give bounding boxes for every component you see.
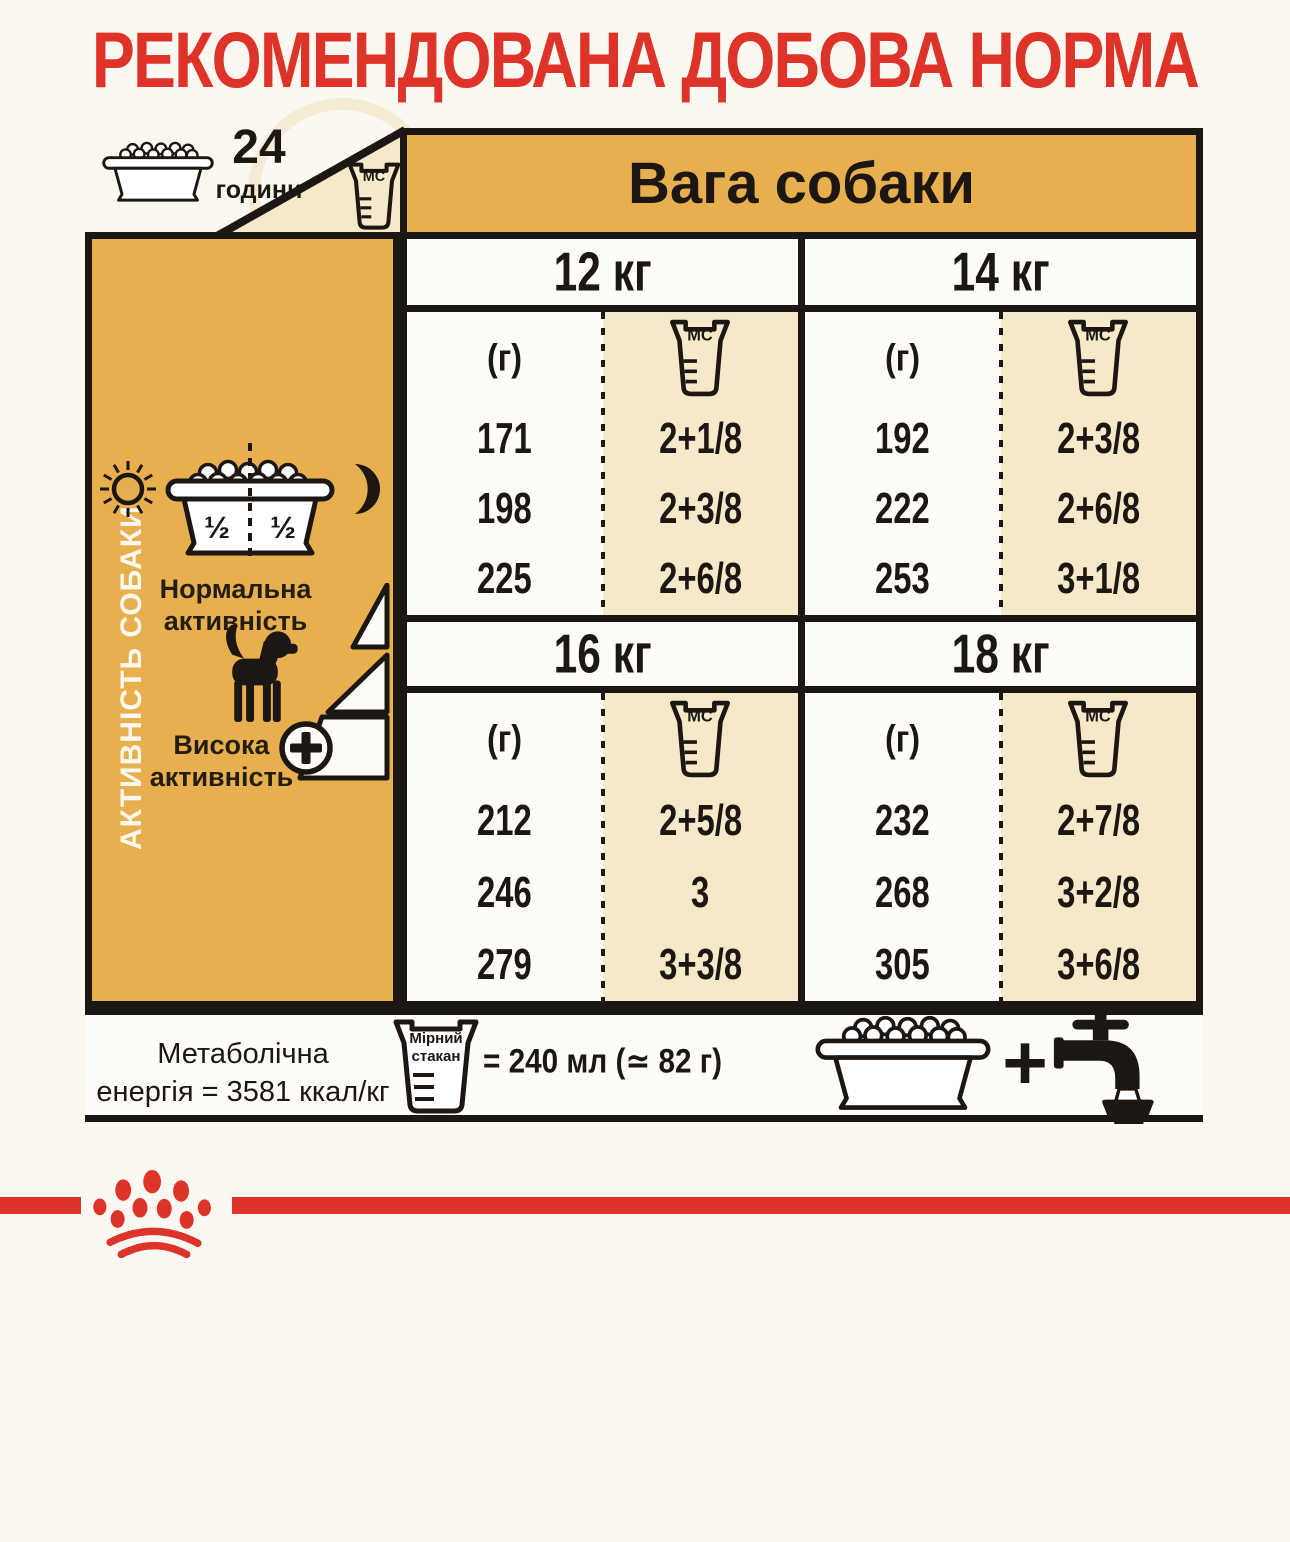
food-bowl-icon — [102, 141, 214, 205]
cup-label-line1: Мірний — [409, 1030, 462, 1047]
cups-column: MC 2+5/8 3 3+3/8 — [603, 693, 799, 1001]
weight-header: Вага собаки — [400, 128, 1203, 239]
measuring-cup-icon: MC — [1067, 318, 1129, 398]
page: РЕКОМЕНДОВАНА ДОБОВА НОРМА MC 24 години … — [0, 0, 1290, 1542]
cups-value: 3+6/8 — [1057, 941, 1140, 990]
cups-column: MC 2+3/8 2+6/8 3+1/8 — [1001, 312, 1197, 615]
grams-header: (г) — [487, 717, 522, 761]
half-bowl-icon: ½ ½ — [160, 439, 340, 569]
red-line-left — [0, 1197, 81, 1214]
weight-cell-18kg: 18 кг — [805, 622, 1196, 686]
cups-value: 2+6/8 — [1057, 485, 1140, 534]
grams-value: 268 — [875, 869, 930, 918]
half-right-label: ½ — [270, 510, 296, 545]
mc-label: MC — [1085, 327, 1111, 345]
table-footer: Метаболічна енергія = 3581 ккал/кг Мірни… — [85, 1008, 1203, 1122]
red-line-right — [232, 1197, 1290, 1214]
cups-value: 3+2/8 — [1057, 869, 1140, 918]
sun-icon — [96, 457, 160, 521]
plus-circle-icon — [276, 718, 336, 778]
dotted-divider — [601, 312, 605, 615]
cups-value: 2+3/8 — [659, 485, 742, 534]
mc-label: MC — [363, 169, 385, 185]
grams-value: 246 — [477, 869, 532, 918]
grams-value: 305 — [875, 941, 930, 990]
grams-value: 198 — [477, 485, 532, 534]
measuring-cup-icon: MC — [669, 699, 731, 779]
weight-label-16kg: 16 кг — [553, 622, 651, 686]
dotted-divider — [999, 312, 1003, 615]
cups-column: MC 2+7/8 3+2/8 3+6/8 — [1001, 693, 1197, 1001]
moon-icon — [346, 463, 380, 515]
cups-value: 3+3/8 — [659, 941, 742, 990]
dog-icon — [218, 623, 298, 727]
food-bowl-icon — [807, 1015, 999, 1115]
plus-icon: + — [993, 1017, 1057, 1108]
data-cell-14kg: (г) 192 222 253 MC 2+3/8 2+6/8 3+1/8 — [805, 312, 1196, 615]
metabolic-energy-line1: Метаболічна — [93, 1035, 393, 1073]
hours-unit: години — [204, 176, 314, 205]
cup-label-line2: стакан — [412, 1048, 461, 1065]
cups-value: 2+6/8 — [659, 556, 742, 605]
grams-value: 253 — [875, 556, 930, 605]
weight-cell-12kg: 12 кг — [407, 239, 798, 305]
data-cell-16kg: (г) 212 246 279 MC 2+5/8 3 3+3/8 — [407, 693, 798, 1001]
cups-value: 2+1/8 — [659, 415, 742, 464]
grams-column: (г) 171 198 225 — [407, 312, 603, 615]
metabolic-energy-line2: енергія = 3581 ккал/кг — [93, 1073, 393, 1111]
weight-header-label: Вага собаки — [628, 150, 975, 217]
grams-value: 232 — [875, 797, 930, 846]
weight-cell-16kg: 16 кг — [407, 622, 798, 686]
half-left-label: ½ — [204, 510, 230, 545]
grams-value: 212 — [477, 797, 532, 846]
hours-number: 24 — [216, 120, 302, 175]
mc-label: MC — [687, 708, 713, 726]
measuring-cup-icon: MC — [669, 318, 731, 398]
weight-label-18kg: 18 кг — [951, 622, 1049, 686]
grams-header: (г) — [487, 336, 522, 380]
grams-header: (г) — [885, 336, 920, 380]
activity-sidebar: АКТИВНІСТЬ СОБАКИ ½ ½ — [85, 232, 400, 1008]
feeding-table: 12 кг 14 кг (г) 171 198 225 MC 2+1 — [400, 232, 1203, 1008]
grams-value: 279 — [477, 941, 532, 990]
metabolic-energy-label: Метаболічна енергія = 3581 ккал/кг — [93, 1035, 393, 1111]
dotted-divider — [601, 693, 605, 1001]
page-title: РЕКОМЕНДОВАНА ДОБОВА НОРМА — [52, 15, 1239, 105]
grams-value: 225 — [477, 556, 532, 605]
cups-column: MC 2+1/8 2+3/8 2+6/8 — [603, 312, 799, 615]
mc-label: MC — [1085, 708, 1111, 726]
cups-value: 2+7/8 — [1057, 797, 1140, 846]
cups-value: 2+5/8 — [659, 797, 742, 846]
measuring-cup-icon: MC — [1067, 699, 1129, 779]
grams-column: (г) 192 222 253 — [805, 312, 1001, 615]
sidebar-vertical-label: АКТИВНІСТЬ СОБАКИ — [112, 520, 152, 850]
cup-volume-label: = 240 мл (≃ 82 г) — [483, 1040, 722, 1081]
grams-column: (г) 212 246 279 — [407, 693, 603, 1001]
measuring-cup-large-icon: Мірний стакан — [391, 1017, 481, 1115]
weight-cell-14kg: 14 кг — [805, 239, 1196, 305]
grams-header: (г) — [885, 717, 920, 761]
cups-value: 3+1/8 — [1057, 556, 1140, 605]
mc-label: MC — [687, 327, 713, 345]
grams-value: 222 — [875, 485, 930, 534]
data-cell-12kg: (г) 171 198 225 MC 2+1/8 2+3/8 2+6/8 — [407, 312, 798, 615]
grams-column: (г) 232 268 305 — [805, 693, 1001, 1001]
cups-value: 2+3/8 — [1057, 415, 1140, 464]
faucet-icon — [1053, 1012, 1157, 1124]
weight-label-14kg: 14 кг — [951, 240, 1049, 304]
data-cell-18kg: (г) 232 268 305 MC 2+7/8 3+2/8 3+6/8 — [805, 693, 1196, 1001]
cups-value: 3 — [691, 869, 709, 918]
weight-label-12kg: 12 кг — [553, 240, 651, 304]
grams-value: 171 — [477, 415, 532, 464]
grams-value: 192 — [875, 415, 930, 464]
crown-logo-icon — [84, 1166, 224, 1258]
dotted-divider — [999, 693, 1003, 1001]
